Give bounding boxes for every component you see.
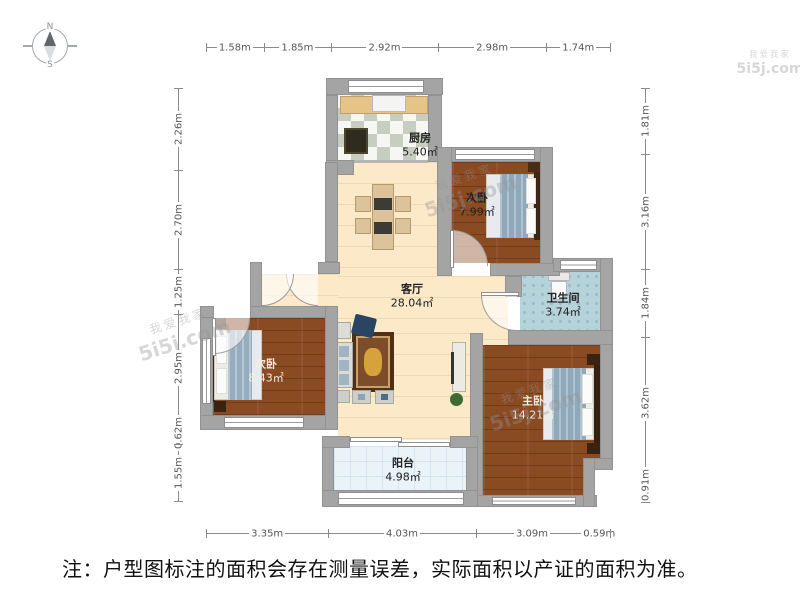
room-label-kitchen: 厨房 5.40㎡ (402, 132, 438, 161)
door-leaf (212, 318, 216, 356)
sofa-cushion (339, 374, 349, 385)
ruler-left: 2.26m2.70m1.25m2.95m0.62m1.55m (178, 88, 179, 501)
sofa-cushion (339, 360, 349, 371)
sliding-door (398, 442, 450, 447)
compass-needle-icon (44, 31, 56, 46)
ruler-tick (174, 88, 183, 89)
wall (450, 436, 478, 448)
dimension-label: 1.85m (279, 43, 315, 54)
sofa-cushion (339, 346, 349, 357)
ottoman-tray (381, 394, 388, 400)
ruler-tick (206, 43, 207, 52)
pillow (526, 208, 536, 234)
rug-medallion (364, 348, 382, 376)
ruler-tick (206, 529, 207, 538)
dimension-label: 1.58m (217, 43, 253, 54)
compass-needle-icon (44, 46, 56, 61)
room-label-bathroom: 卫生间 3.74㎡ (545, 292, 581, 321)
dining-chair (355, 218, 371, 234)
dimension-label: 0.91m (641, 467, 652, 503)
ruler-tick (610, 43, 611, 52)
ottoman (336, 390, 350, 403)
bedroom3-window (224, 417, 304, 428)
watermark: 我爱我家 5i5j.com (737, 48, 800, 77)
ruler-tick (641, 502, 650, 503)
bed-blanket (500, 174, 528, 238)
sliding-door (350, 437, 402, 442)
room-label-master: 主卧 14.21㎡ (512, 395, 555, 424)
ruler-tick (174, 170, 183, 171)
dining-chair (395, 218, 411, 234)
dimension-label: 1.81m (641, 103, 652, 139)
disclaimer-note: 注：户型图标注的面积会存在测量误差，实际面积以产证的面积为准。 (62, 553, 698, 582)
ruler-tick (174, 269, 183, 270)
wall (318, 262, 340, 274)
ruler-tick (264, 43, 265, 52)
floorplan-canvas: N S 1.58m1.85m2.92m2.98m1.74m 3.35m4.03m… (0, 0, 800, 600)
dining-table (372, 184, 394, 250)
dimension-label: 1.74m (560, 43, 596, 54)
door-leaf (450, 230, 454, 268)
wall (325, 306, 338, 430)
dining-chair (395, 196, 411, 212)
dimension-label: 2.92m (366, 43, 402, 54)
dimension-label: 3.62m (641, 385, 652, 421)
placemat (374, 222, 392, 234)
wall (540, 147, 553, 272)
dimension-label: 1.55m (174, 455, 185, 491)
dimension-label: 1.25m (174, 274, 185, 310)
compass-north-label: N (46, 22, 55, 32)
wall (600, 258, 613, 470)
dimension-label: 4.03m (384, 529, 420, 540)
door-leaf (481, 292, 519, 296)
dimension-label: 1.84m (641, 285, 652, 321)
ruler-tick (546, 43, 547, 52)
room-label-living: 客厅 28.04㎡ (391, 283, 434, 312)
bed-blanket (552, 368, 586, 440)
ottoman-tray (358, 394, 365, 400)
dining-chair (355, 196, 371, 212)
dimension-label: 3.16m (641, 194, 652, 230)
dimension-label: 3.09m (514, 529, 550, 540)
ruler-bottom: 3.35m4.03m3.09m0.59m (206, 533, 610, 534)
kitchen-sink (372, 95, 406, 112)
wall (322, 436, 350, 448)
dimension-label: 2.98m (474, 43, 510, 54)
nightstand (214, 401, 226, 412)
dimension-label: 3.35m (249, 529, 285, 540)
pillow (216, 368, 227, 394)
dimension-label: 2.70m (174, 202, 185, 238)
wall (583, 458, 595, 507)
wall (325, 162, 338, 262)
tv-icon (451, 352, 454, 384)
compass-west-tick-icon (23, 45, 32, 47)
ruler-tick (174, 444, 183, 445)
compass: N S (26, 22, 74, 70)
kitchen-window (348, 80, 424, 93)
ruler-top: 1.58m1.85m2.92m2.98m1.74m (206, 47, 610, 48)
compass-south-label: S (46, 60, 54, 70)
ruler-tick (328, 529, 329, 538)
wall (508, 330, 613, 345)
placemat (374, 198, 392, 210)
ruler-right: 1.81m3.16m1.84m3.62m0.91m (645, 88, 646, 502)
exterior-notch (595, 470, 613, 495)
nightstand (587, 443, 600, 454)
ruler-tick (641, 154, 650, 155)
room-label-balcony: 阳台 4.98㎡ (385, 457, 421, 486)
ruler-tick (641, 269, 650, 270)
bathroom-window (560, 260, 597, 270)
pillow (582, 408, 593, 436)
ruler-tick (476, 529, 477, 538)
kitchen-threshold (354, 160, 428, 163)
tv-console (452, 342, 466, 392)
bedroom3-window (202, 338, 211, 404)
room-label-bedroom3: 次卧 8.43㎡ (248, 358, 284, 387)
pillow (526, 178, 536, 204)
dimension-label: 0.62m (174, 415, 185, 451)
stove (344, 128, 368, 154)
ruler-tick (438, 43, 439, 52)
room-label-bedroom2: 次卧 7.99㎡ (459, 192, 495, 221)
ruler-tick (641, 337, 650, 338)
ruler-tick (174, 314, 183, 315)
wall (490, 263, 560, 276)
dimension-label: 2.26m (174, 111, 185, 147)
balcony-window (338, 492, 464, 505)
master-window (492, 497, 576, 505)
dimension-label: 0.59m (581, 529, 617, 540)
pillow (582, 374, 593, 404)
ruler-tick (331, 43, 332, 52)
ruler-tick (610, 529, 611, 538)
bedroom2-window (455, 149, 535, 160)
wall (200, 306, 214, 318)
nightstand (587, 354, 600, 365)
plant-icon (450, 393, 463, 406)
ruler-tick (641, 88, 650, 89)
dimension-label: 2.95m (174, 350, 185, 386)
ruler-tick (174, 501, 183, 502)
compass-east-tick-icon (68, 45, 77, 47)
